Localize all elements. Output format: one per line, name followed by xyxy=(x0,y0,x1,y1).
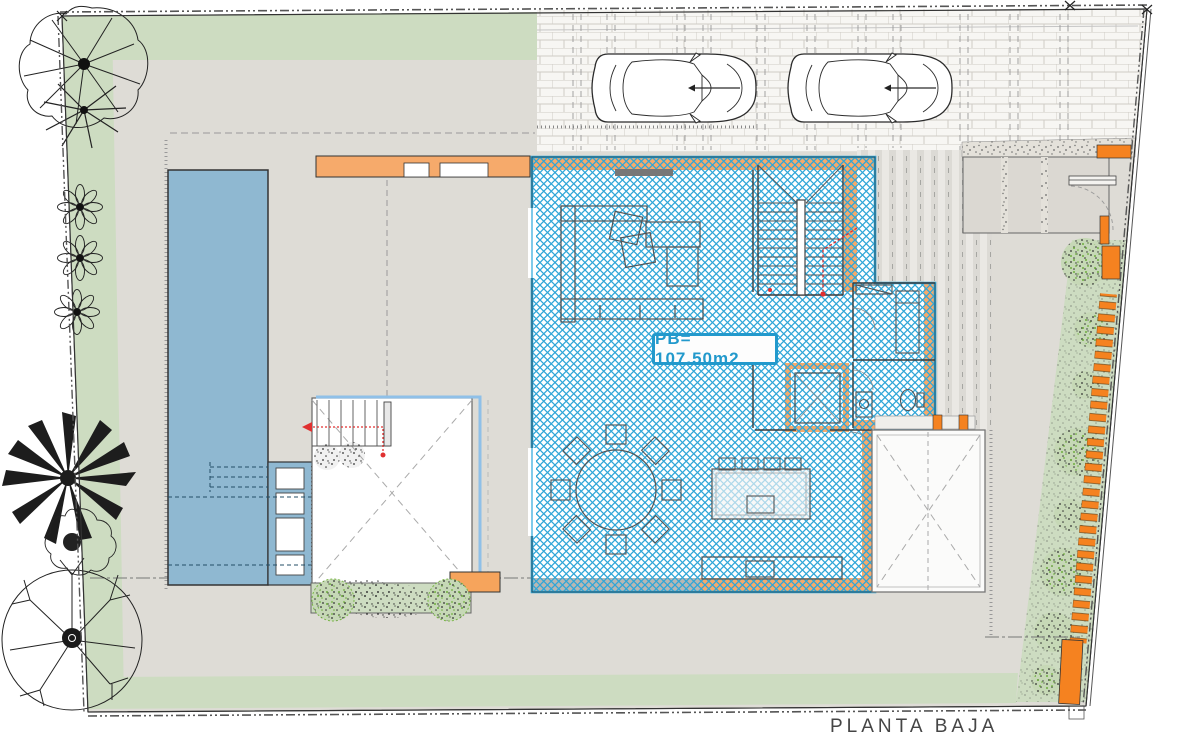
car-2 xyxy=(788,53,952,123)
terrace xyxy=(872,415,985,592)
floor-plan-canvas: PB= 107.50m2 PLANTA BAJA xyxy=(0,0,1200,747)
garage-carport xyxy=(302,397,488,588)
car-1 xyxy=(592,53,756,123)
pergola xyxy=(316,156,530,177)
site-plan-drawing xyxy=(0,0,1200,747)
plan-title: PLANTA BAJA xyxy=(830,716,998,738)
ground-floor-area-label: PB= 107.50m2 xyxy=(652,333,778,365)
pool-deck-steps xyxy=(276,468,304,575)
tv-unit xyxy=(615,169,673,176)
